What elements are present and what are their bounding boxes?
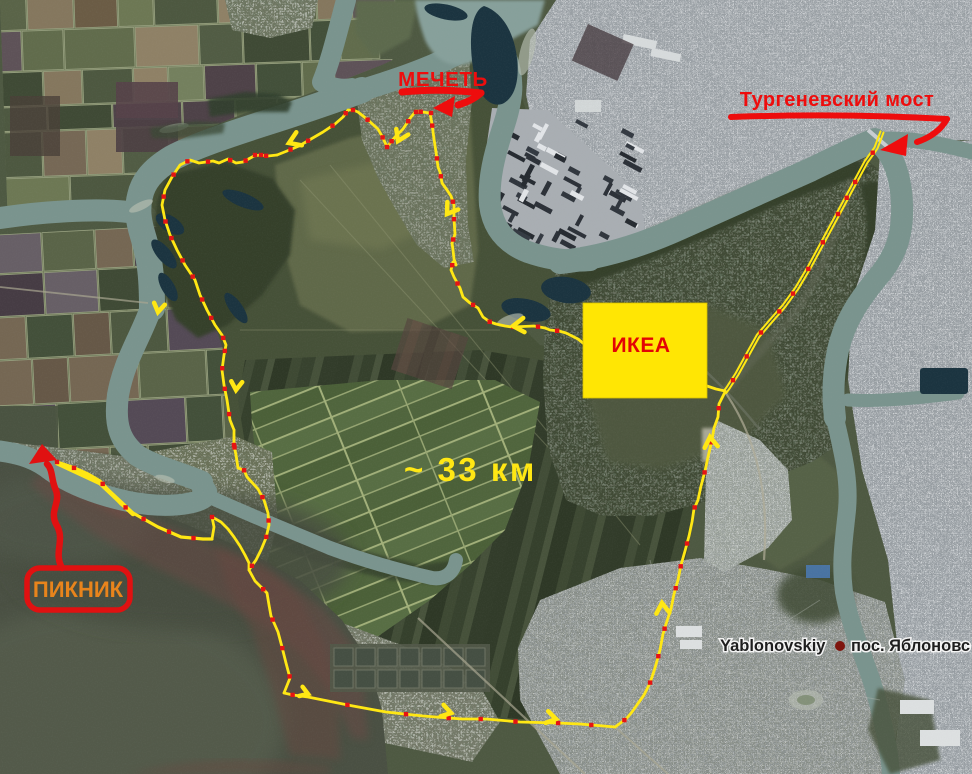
svg-text:Yablonovskiy: Yablonovskiy	[720, 637, 826, 655]
svg-text:~ 33 км: ~ 33 км	[404, 451, 537, 488]
svg-text:пос. Яблоновс: пос. Яблоновс	[851, 637, 970, 655]
svg-text:ПИКНИК: ПИКНИК	[33, 577, 124, 602]
svg-text:Тургеневский мост: Тургеневский мост	[740, 89, 934, 111]
svg-text:ИКЕА: ИКЕА	[611, 334, 670, 357]
